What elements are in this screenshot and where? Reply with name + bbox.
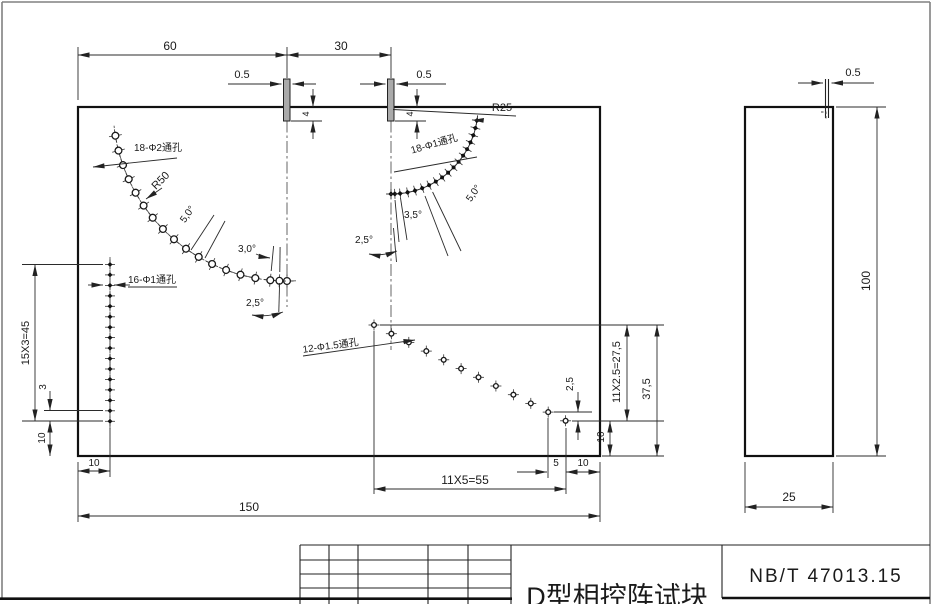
side-view-outline [745,107,833,456]
dim-11x2p5: 11X2.5=27,5 [611,341,623,403]
hole [560,415,571,426]
dim-notch2-depth: 4 [405,111,415,116]
sheet-frame [2,2,930,604]
dim-100: 100 [859,271,873,291]
hole [115,157,132,174]
hole [105,406,115,416]
angle-dimensions: 5,0° 3,0° 2,5° 5,0° 3,5° 2,5° [178,183,483,316]
dim-10-column-left: 10 [88,458,100,469]
note-holes-column: 16-Φ1通孔 [128,274,176,286]
dim-11x5: 11X5=55 [441,473,489,487]
angle-left-2p5: 2,5° [246,298,264,309]
hole [525,398,536,409]
hole [105,343,115,353]
angle-right-5: 5,0° [464,183,483,204]
hole [403,337,414,348]
hole [508,389,519,400]
hole [190,248,208,266]
dim-25: 25 [782,490,796,504]
hole [464,136,477,149]
hole [105,270,115,280]
angle-right-3p5: 3,5° [404,210,422,221]
holes-arc-r25 [386,115,483,199]
hole [203,255,220,272]
dim-2p5: 2,5 [565,377,576,391]
hole-patterns [105,115,571,426]
hole [135,197,153,215]
hole [543,407,554,418]
dim-notch1-depth: 4 [301,111,311,116]
part-name: D型相控阵试块 [526,582,708,604]
hole [105,291,115,301]
hole [105,416,115,426]
dim-5: 5 [553,458,559,469]
dim-60: 60 [163,39,177,53]
dim-37p5: 37,5 [641,378,653,399]
dim-15x3: 15X3=45 [20,321,32,365]
dim-10-bottom-right: 10 [577,458,589,469]
hole [218,262,235,279]
hole [105,322,115,332]
note-r50: R50 [149,169,172,192]
note-r25: R25 [492,102,512,114]
hole [105,364,115,374]
hole [473,372,484,383]
hole [409,184,421,196]
dim-10-column-bottom: 10 [37,432,48,444]
notch1-slot [284,79,291,121]
hole [490,381,501,392]
hole [120,171,137,188]
hole [144,209,162,227]
dim-notch2-width: 0.5 [416,69,431,81]
hole [232,267,248,283]
front-view [78,79,600,456]
title-block: NB/T 47013.15 D型相控阵试块 [0,545,930,604]
hole [438,354,449,365]
hole [422,179,435,192]
hole [456,363,467,374]
dim-30: 30 [334,39,348,53]
dim-notch1-width: 0.5 [234,69,249,81]
hole [467,129,480,142]
hole [248,271,263,286]
dim-side-notch-width: 0.5 [845,67,860,79]
hole [469,122,481,134]
hole [105,301,115,311]
hole [105,395,115,405]
hole [105,385,115,395]
holes-diagonal [369,320,572,427]
hole [105,260,115,270]
dim-10-right: 10 [596,431,607,443]
notch2-slot [388,79,395,121]
hole [369,320,380,331]
hole [165,230,183,248]
hole [108,128,123,143]
hole [111,143,127,159]
hole [105,312,115,322]
angle-left-3: 3,0° [238,244,256,255]
dim-150: 150 [239,500,259,514]
hole [105,333,115,343]
dim-3: 3 [38,384,49,390]
hole [105,354,115,364]
hole [386,328,397,339]
leader-notes: 18-Φ2通孔 R50 R25 18-Φ1通孔 16-Φ1通孔 12-Φ1.5通… [88,102,516,356]
hole [421,346,432,357]
hole [402,187,414,199]
side-view [745,79,833,456]
hole [416,182,429,195]
engineering-drawing: 60 30 0.5 0.5 4 4 150 11X5=55 5 10 [0,0,932,604]
hole [105,374,115,384]
hole [105,280,115,290]
hole [127,184,145,202]
note-holes-r50: 18-Φ2通孔 [134,142,182,154]
angle-right-2p5: 2,5° [355,235,373,246]
standard-number: NB/T 47013.15 [749,566,902,587]
angle-left-5: 5,0° [178,204,197,225]
note-holes-diagonal: 12-Φ1.5通孔 [302,336,359,356]
